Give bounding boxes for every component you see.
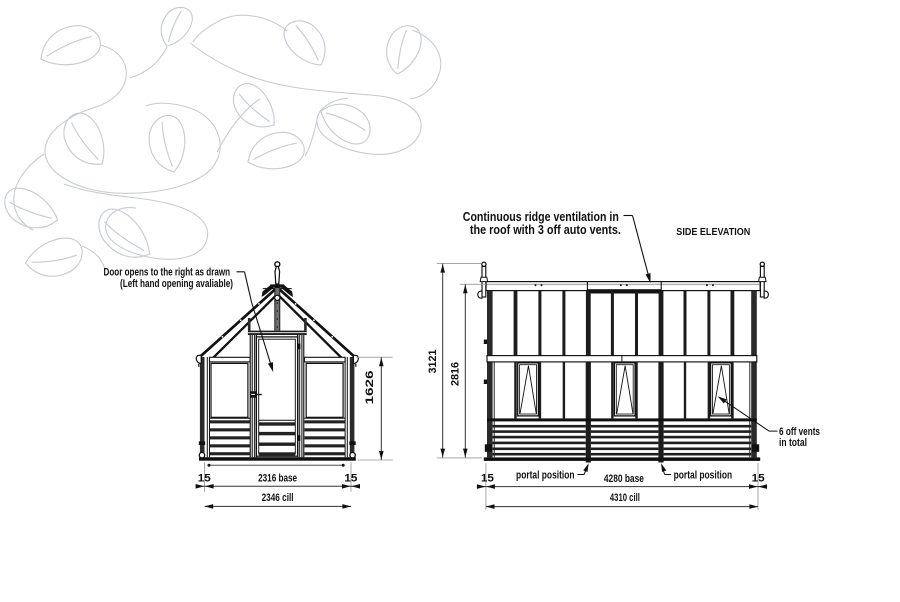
svg-text:SIDE ELEVATION: SIDE ELEVATION (676, 227, 750, 238)
svg-text:Door opens to the right as dra: Door opens to the right as drawn (104, 267, 231, 279)
svg-text:2316 base: 2316 base (258, 473, 297, 485)
svg-text:2346 cill: 2346 cill (262, 492, 294, 504)
svg-text:(Left hand opening avaliable): (Left hand opening avaliable) (120, 278, 233, 290)
svg-text:1626: 1626 (364, 371, 376, 405)
svg-text:Continuous ridge ventilation i: Continuous ridge ventilation in (463, 210, 619, 224)
svg-text:2816: 2816 (449, 362, 461, 386)
svg-text:15: 15 (344, 473, 357, 485)
svg-text:portal position: portal position (674, 469, 733, 481)
svg-text:4280 base: 4280 base (604, 473, 644, 485)
svg-text:15: 15 (752, 473, 765, 485)
svg-text:3121: 3121 (427, 350, 439, 374)
svg-text:15: 15 (481, 473, 494, 485)
svg-text:the roof with 3 off auto vents: the roof with 3 off auto vents. (470, 223, 621, 237)
svg-text:in total: in total (779, 437, 807, 449)
svg-text:portal position: portal position (516, 469, 575, 481)
svg-text:4310 cill: 4310 cill (610, 492, 640, 504)
svg-text:15: 15 (198, 473, 211, 485)
